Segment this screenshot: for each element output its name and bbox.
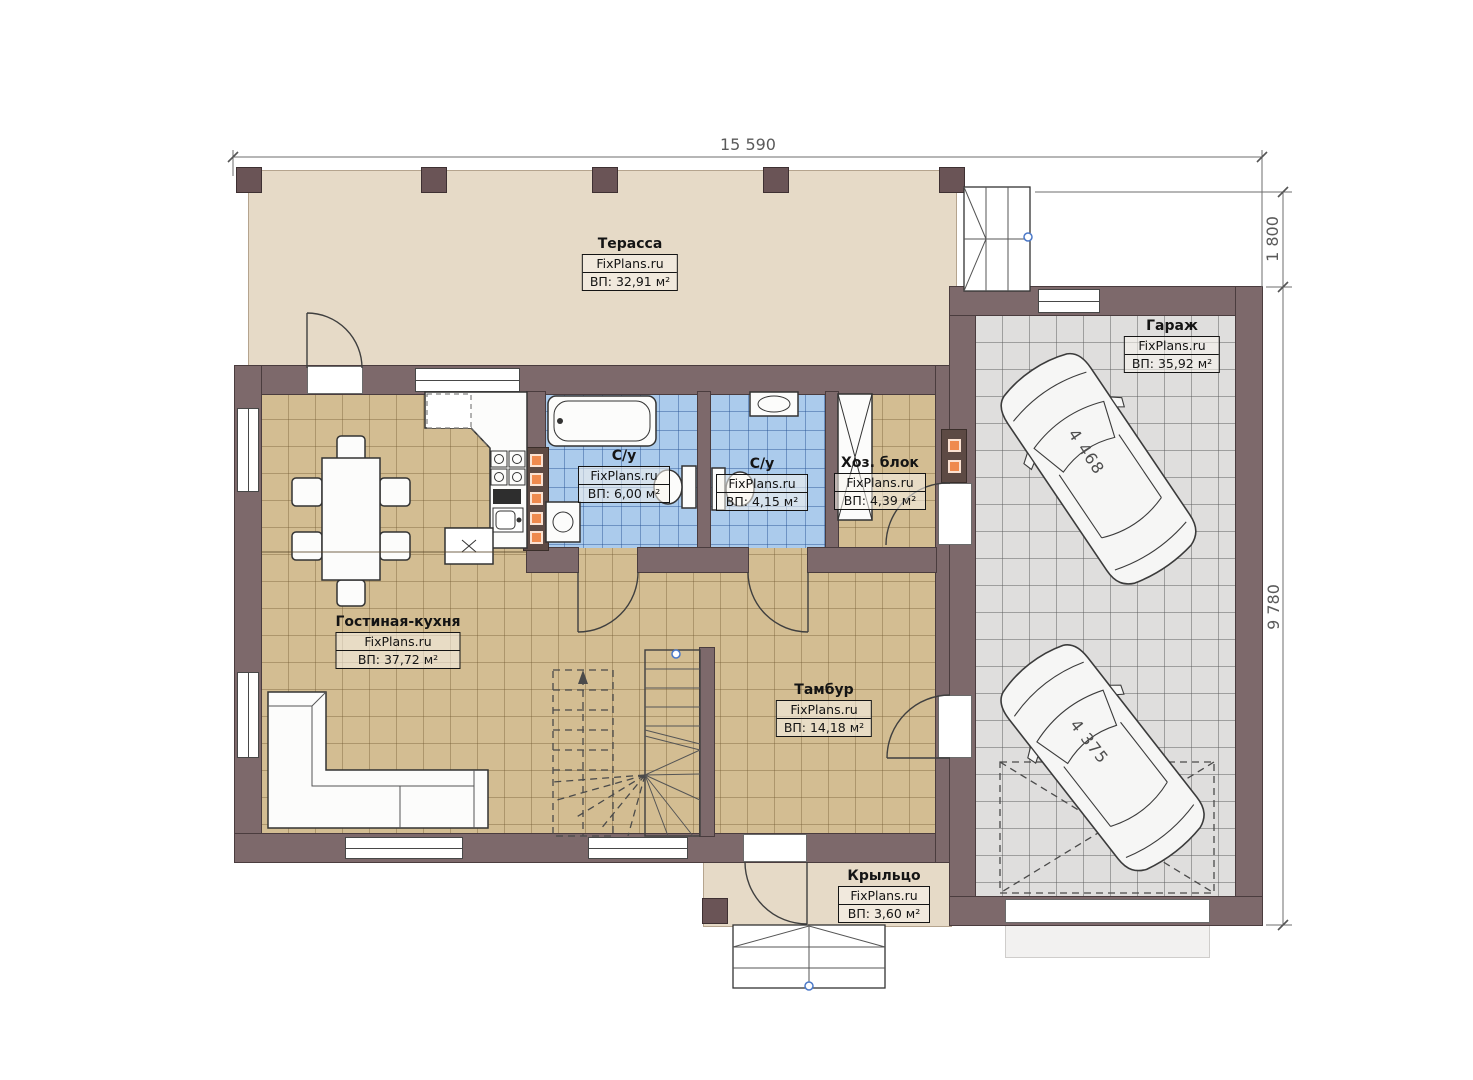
room-label-bathroom-1: С/у FixPlans.ru ВП: 6,00 м²: [578, 448, 670, 503]
room-label-garage: Гараж FixPlans.ru ВП: 35,92 м²: [1124, 318, 1220, 373]
brand-text: FixPlans.ru: [579, 467, 669, 485]
room-info-box: FixPlans.ru ВП: 6,00 м²: [578, 466, 670, 503]
wall-garage-top: [950, 287, 1262, 315]
wall-garage-left: [950, 287, 975, 925]
brand-text: FixPlans.ru: [1125, 337, 1219, 355]
door-opening-entrance: [743, 834, 807, 862]
door-opening-terrace: [307, 366, 363, 394]
area-text: ВП: 32,91 м²: [583, 273, 677, 290]
wall-bath-row-a: [527, 548, 578, 572]
wall-bath-row-b: [638, 548, 748, 572]
room-name: С/у: [716, 456, 808, 472]
brand-text: FixPlans.ru: [583, 255, 677, 273]
terrace-steps: [964, 187, 1032, 291]
room-label-vestibule: Тамбур FixPlans.ru ВП: 14,18 м²: [776, 682, 872, 737]
area-text: ВП: 35,92 м²: [1125, 355, 1219, 372]
room-info-box: FixPlans.ru ВП: 37,72 м²: [335, 632, 460, 669]
porch-column: [703, 899, 727, 923]
window-left-2: [237, 672, 259, 758]
terrace-column: [764, 168, 788, 192]
area-text: ВП: 4,15 м²: [717, 493, 807, 510]
floor-plan: 15 590 1 800 9 780: [0, 0, 1473, 1080]
wall-stairs-vestibule: [700, 648, 714, 836]
area-text: ВП: 37,72 м²: [336, 651, 459, 668]
door-utility-garage: [938, 483, 972, 545]
room-label-utility: Хоз. блок FixPlans.ru ВП: 4,39 м²: [834, 455, 926, 510]
porch-steps: [733, 925, 885, 990]
door-vestibule-garage: [938, 695, 972, 758]
room-name: Хоз. блок: [834, 455, 926, 471]
vent-shaft-garage: [942, 430, 966, 482]
svg-text:1 800: 1 800: [1263, 216, 1282, 262]
brand-text: FixPlans.ru: [777, 701, 871, 719]
window-bottom-2: [588, 837, 688, 859]
wall-bath-row-c: [808, 548, 936, 572]
wall-garage-right: [1236, 287, 1262, 925]
brand-text: FixPlans.ru: [839, 887, 929, 905]
window-left-1: [237, 408, 259, 492]
window-garage-top: [1038, 289, 1100, 313]
terrace-column: [237, 168, 261, 192]
room-label-porch: Крыльцо FixPlans.ru ВП: 3,60 м²: [838, 868, 930, 923]
room-label-living-kitchen: Гостиная-кухня FixPlans.ru ВП: 37,72 м²: [335, 614, 460, 669]
room-label-bathroom-2: С/у FixPlans.ru ВП: 4,15 м²: [716, 456, 808, 511]
room-name: С/у: [578, 448, 670, 464]
room-info-box: FixPlans.ru ВП: 32,91 м²: [582, 254, 678, 291]
room-info-box: FixPlans.ru ВП: 35,92 м²: [1124, 336, 1220, 373]
brand-text: FixPlans.ru: [717, 475, 807, 493]
window-bottom-1: [345, 837, 463, 859]
room-info-box: FixPlans.ru ВП: 3,60 м²: [838, 886, 930, 923]
window-top: [415, 368, 520, 392]
room-label-terrace: Терасса FixPlans.ru ВП: 32,91 м²: [582, 236, 678, 291]
svg-text:9 780: 9 780: [1264, 584, 1283, 630]
terrace-column: [940, 168, 964, 192]
area-text: ВП: 6,00 м²: [579, 485, 669, 502]
room-name: Терасса: [582, 236, 678, 252]
area-text: ВП: 4,39 м²: [835, 492, 925, 509]
vent-shaft-kitchen: [524, 448, 548, 550]
room-name: Гостиная-кухня: [335, 614, 460, 630]
room-info-box: FixPlans.ru ВП: 14,18 м²: [776, 700, 872, 737]
room-info-box: FixPlans.ru ВП: 4,39 м²: [834, 473, 926, 510]
terrace-column: [422, 168, 446, 192]
room-name: Тамбур: [776, 682, 872, 698]
brand-text: FixPlans.ru: [336, 633, 459, 651]
brand-text: FixPlans.ru: [835, 474, 925, 492]
garage-gate-opening: [1005, 899, 1210, 923]
svg-text:15 590: 15 590: [720, 135, 776, 154]
terrace-column: [593, 168, 617, 192]
area-text: ВП: 3,60 м²: [839, 905, 929, 922]
room-name: Крыльцо: [838, 868, 930, 884]
wall-bath1-bath2: [698, 392, 710, 552]
garage-apron: [1005, 925, 1210, 958]
room-info-box: FixPlans.ru ВП: 4,15 м²: [716, 474, 808, 511]
room-name: Гараж: [1124, 318, 1220, 334]
garage-floor: [975, 315, 1235, 897]
area-text: ВП: 14,18 м²: [777, 719, 871, 736]
